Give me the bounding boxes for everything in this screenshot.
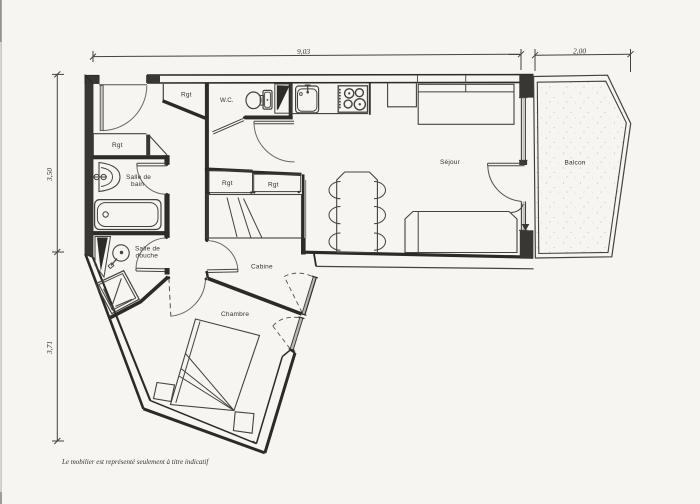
svg-text:Salle de: Salle de: [135, 246, 160, 253]
svg-text:bain: bain: [131, 181, 144, 188]
svg-text:2,00: 2,00: [573, 47, 586, 56]
svg-text:Cabine: Cabine: [251, 264, 273, 271]
svg-text:3,50: 3,50: [45, 168, 54, 182]
svg-text:Rgt: Rgt: [112, 142, 123, 149]
svg-text:9,03: 9,03: [297, 47, 310, 56]
svg-text:Rgt: Rgt: [222, 180, 233, 187]
svg-text:Salle de: Salle de: [126, 174, 151, 181]
svg-text:3,71: 3,71: [45, 341, 54, 355]
svg-text:Le mobilier est représenté seu: Le mobilier est représenté seulement à t…: [61, 458, 209, 466]
svg-text:Balcon: Balcon: [565, 160, 586, 167]
svg-text:Rgt: Rgt: [181, 92, 192, 99]
svg-text:W.C.: W.C.: [220, 97, 234, 104]
svg-text:Séjour: Séjour: [440, 159, 461, 166]
svg-text:Rgt: Rgt: [268, 182, 279, 189]
svg-text:Chambre: Chambre: [221, 311, 249, 318]
